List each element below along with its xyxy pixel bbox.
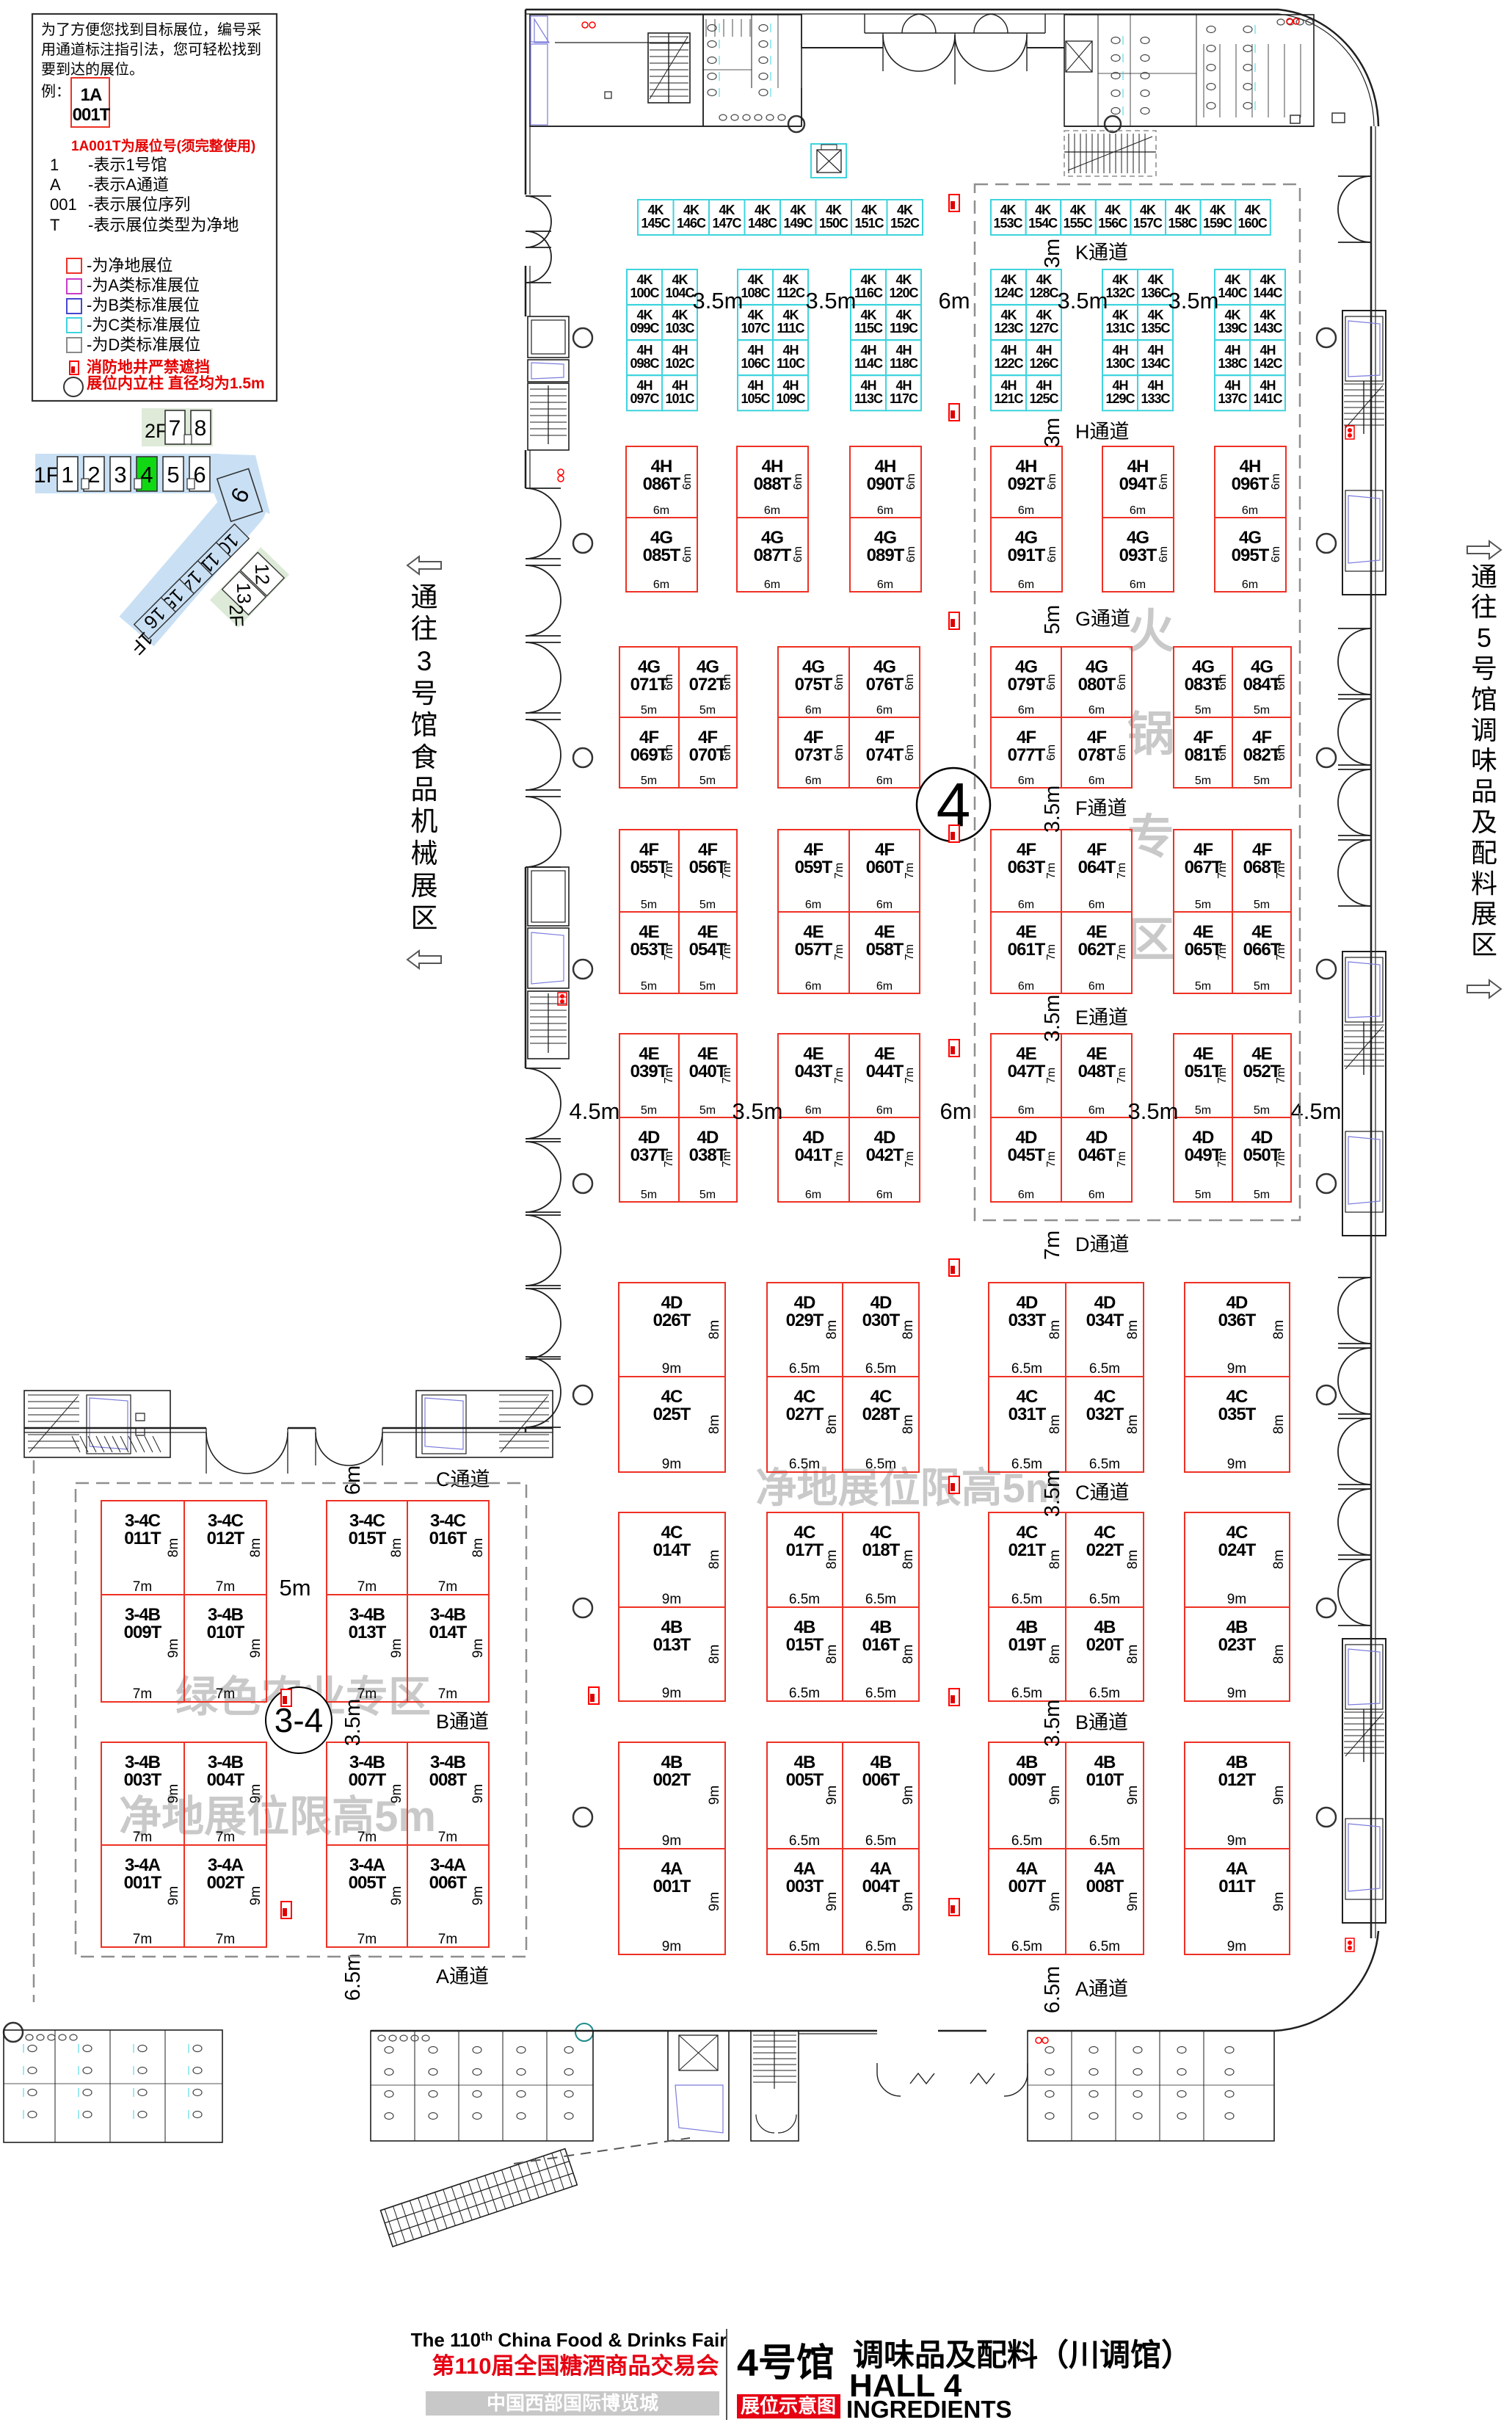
svg-text:2: 2 <box>87 462 100 488</box>
svg-text:食: 食 <box>411 742 438 772</box>
svg-text:4H: 4H <box>1112 343 1127 358</box>
svg-text:3-4B: 3-4B <box>208 1605 244 1625</box>
svg-text:134C: 134C <box>1141 356 1170 371</box>
svg-text:064T: 064T <box>1078 858 1116 877</box>
svg-text:7m: 7m <box>904 863 916 879</box>
svg-text:3-4C: 3-4C <box>208 1511 244 1531</box>
svg-text:6m: 6m <box>1116 674 1128 690</box>
svg-text:7m: 7m <box>216 1579 235 1595</box>
svg-text:3-4B: 3-4B <box>125 1605 161 1625</box>
svg-text:4F: 4F <box>1087 728 1106 747</box>
svg-text:6.5m: 6.5m <box>1011 1457 1042 1472</box>
svg-text:-为D类标准展位: -为D类标准展位 <box>87 336 200 354</box>
svg-text:消防地井严禁遮挡: 消防地井严禁遮挡 <box>87 358 210 376</box>
svg-text:4D: 4D <box>1193 1128 1214 1148</box>
svg-text:009T: 009T <box>1008 1770 1047 1790</box>
svg-text:9m: 9m <box>662 1686 681 1701</box>
svg-text:4E: 4E <box>1193 922 1213 942</box>
svg-text:8m: 8m <box>901 1320 916 1339</box>
svg-text:150C: 150C <box>819 216 848 231</box>
svg-text:往: 往 <box>411 614 438 644</box>
svg-text:9m: 9m <box>1227 1592 1246 1607</box>
svg-text:116C: 116C <box>854 286 883 300</box>
svg-text:3-4C: 3-4C <box>125 1511 161 1531</box>
svg-text:6.5m: 6.5m <box>1089 1833 1120 1849</box>
svg-text:4K: 4K <box>755 203 771 217</box>
svg-text:3-4B: 3-4B <box>349 1753 385 1772</box>
svg-text:8m: 8m <box>901 1415 916 1434</box>
svg-text:4E: 4E <box>1251 922 1272 942</box>
svg-text:8m: 8m <box>1125 1415 1141 1434</box>
svg-text:141C: 141C <box>1253 391 1282 406</box>
svg-text:109C: 109C <box>776 391 805 406</box>
svg-text:3-4B: 3-4B <box>430 1605 466 1625</box>
svg-text:014T: 014T <box>429 1623 468 1642</box>
svg-text:6.5m: 6.5m <box>1011 1592 1042 1607</box>
svg-text:4K: 4K <box>1174 203 1191 217</box>
svg-text:104C: 104C <box>665 286 694 300</box>
svg-text:4F: 4F <box>639 840 658 860</box>
svg-text:4K: 4K <box>1112 272 1128 287</box>
svg-text:6.5m: 6.5m <box>789 1361 820 1377</box>
svg-text:060T: 060T <box>866 858 904 877</box>
svg-text:4D: 4D <box>1251 1128 1273 1148</box>
svg-text:094T: 094T <box>1119 474 1157 494</box>
svg-text:111C: 111C <box>777 321 804 336</box>
svg-text:151C: 151C <box>854 216 884 231</box>
svg-text:3m: 3m <box>1041 418 1064 447</box>
svg-text:4K: 4K <box>1036 272 1052 287</box>
svg-text:4K: 4K <box>1224 308 1240 322</box>
svg-text:7m: 7m <box>1216 1151 1229 1167</box>
svg-text:101C: 101C <box>665 391 694 406</box>
svg-text:4C: 4C <box>1017 1523 1038 1543</box>
svg-text:6m: 6m <box>877 579 893 591</box>
svg-text:-表示展位序列: -表示展位序列 <box>88 195 190 214</box>
svg-text:4A: 4A <box>1226 1859 1248 1879</box>
svg-text:7m: 7m <box>1045 944 1058 960</box>
svg-text:011T: 011T <box>1218 1877 1256 1896</box>
svg-text:4G: 4G <box>873 657 895 677</box>
svg-text:6m: 6m <box>1018 504 1034 517</box>
svg-text:6m: 6m <box>1216 744 1229 761</box>
svg-text:6m: 6m <box>876 704 893 717</box>
svg-text:6.5m: 6.5m <box>865 1939 896 1954</box>
svg-text:4K: 4K <box>1000 272 1017 287</box>
svg-text:4F: 4F <box>698 728 717 747</box>
svg-text:016T: 016T <box>429 1529 468 1548</box>
svg-text:6m: 6m <box>764 579 780 591</box>
svg-text:5m: 5m <box>1195 775 1211 787</box>
svg-text:INGREDIENTS: INGREDIENTS <box>846 2396 1012 2423</box>
svg-text:6m: 6m <box>663 674 675 690</box>
svg-text:4K: 4K <box>1000 203 1016 217</box>
svg-text:8m: 8m <box>707 1415 722 1434</box>
svg-text:6m: 6m <box>1088 704 1105 717</box>
svg-text:4H: 4H <box>1240 457 1261 476</box>
svg-text:9m: 9m <box>248 1886 263 1905</box>
svg-text:136C: 136C <box>1141 286 1170 300</box>
svg-text:062T: 062T <box>1078 940 1116 960</box>
svg-text:4K: 4K <box>636 308 653 322</box>
svg-text:089T: 089T <box>867 546 905 565</box>
svg-text:128C: 128C <box>1029 286 1058 300</box>
svg-text:4C: 4C <box>871 1523 892 1543</box>
svg-text:3-4C: 3-4C <box>430 1511 466 1531</box>
svg-text:1A: 1A <box>81 85 102 105</box>
svg-text:2F: 2F <box>145 420 168 442</box>
svg-text:4H: 4H <box>672 378 687 393</box>
svg-text:3-4B: 3-4B <box>125 1753 161 1772</box>
svg-text:4C: 4C <box>661 1523 683 1543</box>
svg-text:-为B类标准展位: -为B类标准展位 <box>87 296 200 314</box>
svg-text:7m: 7m <box>216 1686 235 1702</box>
svg-text:5m: 5m <box>1254 1104 1270 1117</box>
svg-text:5m: 5m <box>1254 704 1270 717</box>
svg-text:144C: 144C <box>1253 286 1282 300</box>
svg-text:E通道: E通道 <box>1075 1007 1128 1029</box>
svg-text:1: 1 <box>50 156 59 174</box>
svg-text:6.5m: 6.5m <box>1011 1361 1042 1377</box>
svg-text:026T: 026T <box>653 1311 691 1330</box>
svg-text:4K: 4K <box>1140 203 1156 217</box>
svg-text:1F: 1F <box>34 463 59 488</box>
svg-text:020T: 020T <box>1086 1635 1124 1655</box>
svg-text:078T: 078T <box>1078 745 1116 765</box>
svg-text:6m: 6m <box>1018 775 1034 787</box>
svg-text:6m: 6m <box>876 775 893 787</box>
svg-text:080T: 080T <box>1078 675 1116 695</box>
svg-text:4B: 4B <box>1226 1617 1248 1637</box>
svg-text:088T: 088T <box>754 474 792 494</box>
svg-text:4F: 4F <box>1017 728 1036 747</box>
svg-text:7m: 7m <box>833 1151 846 1167</box>
svg-text:027T: 027T <box>786 1405 824 1424</box>
svg-text:4G: 4G <box>802 657 824 677</box>
svg-text:4D: 4D <box>1017 1293 1038 1313</box>
svg-text:002T: 002T <box>653 1770 691 1790</box>
svg-text:4K: 4K <box>747 272 763 287</box>
svg-text:4K: 4K <box>782 308 799 322</box>
svg-text:4B: 4B <box>794 1617 815 1637</box>
svg-text:7m: 7m <box>357 1932 377 1947</box>
svg-text:146C: 146C <box>677 216 706 231</box>
svg-text:8m: 8m <box>901 1550 916 1569</box>
svg-text:5m: 5m <box>279 1575 310 1601</box>
svg-text:6.5m: 6.5m <box>865 1457 896 1472</box>
svg-text:4H: 4H <box>636 378 652 393</box>
svg-text:058T: 058T <box>866 940 904 960</box>
svg-text:4K: 4K <box>672 308 688 322</box>
svg-text:4D: 4D <box>1226 1293 1248 1313</box>
svg-text:4K: 4K <box>747 308 763 322</box>
svg-text:4K: 4K <box>1035 203 1051 217</box>
svg-text:113C: 113C <box>854 391 883 406</box>
svg-text:6m: 6m <box>1018 704 1034 717</box>
svg-text:3: 3 <box>114 462 126 488</box>
svg-text:4E: 4E <box>1016 922 1036 942</box>
svg-text:5m: 5m <box>641 980 657 993</box>
svg-text:6m: 6m <box>1046 546 1058 562</box>
svg-text:4号馆: 4号馆 <box>737 2342 835 2385</box>
svg-text:130C: 130C <box>1105 356 1135 371</box>
svg-text:6m: 6m <box>1130 504 1146 517</box>
svg-text:8m: 8m <box>470 1538 486 1557</box>
svg-text:7m: 7m <box>1041 1231 1064 1260</box>
svg-text:017T: 017T <box>786 1540 824 1560</box>
svg-text:6.5m: 6.5m <box>1089 1592 1120 1607</box>
svg-text:057T: 057T <box>795 940 833 960</box>
svg-text:4E: 4E <box>697 922 718 942</box>
svg-text:125C: 125C <box>1029 391 1058 406</box>
svg-text:5m: 5m <box>1195 1104 1211 1117</box>
svg-text:-表示A通道: -表示A通道 <box>88 175 169 194</box>
svg-text:8m: 8m <box>1125 1320 1141 1339</box>
svg-text:076T: 076T <box>866 675 904 695</box>
svg-text:4K: 4K <box>897 203 913 217</box>
svg-text:4H: 4H <box>651 457 672 476</box>
svg-text:要到达的展位。: 要到达的展位。 <box>41 61 144 78</box>
svg-text:3.5m: 3.5m <box>1041 1470 1064 1517</box>
svg-text:034T: 034T <box>1086 1311 1124 1330</box>
svg-text:3-4B: 3-4B <box>208 1753 244 1772</box>
svg-text:8m: 8m <box>1047 1645 1063 1664</box>
svg-text:8m: 8m <box>248 1538 263 1557</box>
svg-text:4K: 4K <box>1147 308 1163 322</box>
svg-text:4K: 4K <box>895 272 912 287</box>
svg-text:4C: 4C <box>794 1523 815 1543</box>
svg-text:4K: 4K <box>636 272 653 287</box>
svg-text:7m: 7m <box>904 944 916 960</box>
svg-text:075T: 075T <box>795 675 833 695</box>
svg-text:029T: 029T <box>786 1311 824 1330</box>
svg-text:6m: 6m <box>1270 546 1282 562</box>
svg-text:9m: 9m <box>901 1786 916 1805</box>
svg-text:7m: 7m <box>721 863 733 879</box>
svg-text:3.5m: 3.5m <box>693 288 744 314</box>
svg-text:004T: 004T <box>862 1877 901 1896</box>
svg-text:041T: 041T <box>795 1145 833 1165</box>
svg-text:085T: 085T <box>643 546 681 565</box>
svg-text:6m: 6m <box>805 775 821 787</box>
svg-text:8m: 8m <box>1047 1415 1063 1434</box>
svg-text:048T: 048T <box>1078 1062 1116 1081</box>
svg-text:9m: 9m <box>470 1784 486 1803</box>
svg-text:4H: 4H <box>672 343 687 358</box>
svg-text:4B: 4B <box>871 1617 892 1637</box>
svg-text:6m: 6m <box>764 504 780 517</box>
svg-text:3.5m: 3.5m <box>1058 288 1108 314</box>
svg-text:4G: 4G <box>697 657 719 677</box>
svg-text:5m: 5m <box>1195 1189 1211 1201</box>
svg-text:003T: 003T <box>124 1770 162 1790</box>
svg-text:091T: 091T <box>1008 546 1046 565</box>
svg-text:4H: 4H <box>895 343 911 358</box>
svg-text:9m: 9m <box>389 1784 404 1803</box>
svg-text:4K: 4K <box>1112 308 1128 322</box>
svg-text:4E: 4E <box>1251 1044 1272 1064</box>
svg-text:4F: 4F <box>875 728 894 747</box>
svg-text:4D: 4D <box>871 1293 892 1313</box>
svg-text:024T: 024T <box>1218 1540 1257 1560</box>
svg-text:7m: 7m <box>1275 1151 1287 1167</box>
svg-text:4K: 4K <box>1105 203 1121 217</box>
svg-text:5m: 5m <box>699 775 716 787</box>
svg-text:095T: 095T <box>1232 546 1270 565</box>
svg-text:6m: 6m <box>1088 1189 1105 1201</box>
svg-text:073T: 073T <box>795 745 833 765</box>
svg-text:7m: 7m <box>1116 1068 1128 1084</box>
svg-text:4G: 4G <box>1127 528 1149 548</box>
svg-text:061T: 061T <box>1008 940 1046 960</box>
svg-text:5m: 5m <box>699 980 716 993</box>
svg-text:5m: 5m <box>1254 980 1270 993</box>
svg-text:7m: 7m <box>721 1068 733 1084</box>
svg-text:8m: 8m <box>1271 1645 1287 1664</box>
svg-text:4F: 4F <box>804 840 823 860</box>
svg-text:9m: 9m <box>1227 1939 1246 1954</box>
svg-text:4: 4 <box>140 462 153 488</box>
svg-text:033T: 033T <box>1008 1311 1047 1330</box>
svg-text:4B: 4B <box>661 1753 683 1772</box>
svg-text:4K: 4K <box>861 203 877 217</box>
svg-text:9m: 9m <box>1227 1833 1246 1849</box>
svg-text:122C: 122C <box>994 356 1023 371</box>
svg-text:044T: 044T <box>866 1062 904 1081</box>
svg-text:7m: 7m <box>1275 1068 1287 1084</box>
svg-text:001T: 001T <box>653 1877 691 1896</box>
svg-text:8m: 8m <box>707 1550 722 1569</box>
svg-text:例：: 例： <box>41 83 70 100</box>
svg-text:112C: 112C <box>777 286 805 300</box>
svg-text:5m: 5m <box>699 1189 716 1201</box>
svg-text:9m: 9m <box>1227 1686 1246 1701</box>
svg-text:022T: 022T <box>1086 1540 1124 1560</box>
svg-text:148C: 148C <box>748 216 777 231</box>
svg-text:097C: 097C <box>630 391 659 406</box>
svg-text:5m: 5m <box>641 704 657 717</box>
svg-text:154C: 154C <box>1028 216 1058 231</box>
svg-text:9m: 9m <box>166 1639 181 1658</box>
svg-text:6m: 6m <box>653 579 669 591</box>
svg-text:6.5m: 6.5m <box>341 1954 365 2001</box>
svg-text:156C: 156C <box>1098 216 1127 231</box>
svg-text:6m: 6m <box>876 1104 893 1117</box>
svg-text:4G: 4G <box>1192 657 1214 677</box>
svg-text:4E: 4E <box>1086 922 1107 942</box>
svg-text:6m: 6m <box>721 674 733 690</box>
svg-text:157C: 157C <box>1133 216 1163 231</box>
svg-text:配: 配 <box>1471 838 1497 868</box>
svg-text:馆: 馆 <box>1471 684 1497 714</box>
svg-text:7m: 7m <box>663 1151 675 1167</box>
svg-text:1: 1 <box>61 462 73 488</box>
svg-text:4K: 4K <box>782 272 799 287</box>
svg-text:4K: 4K <box>1260 272 1276 287</box>
svg-text:6.5m: 6.5m <box>789 1457 820 1472</box>
svg-text:013T: 013T <box>653 1635 691 1655</box>
svg-text:6m: 6m <box>876 899 893 911</box>
svg-text:3.5m: 3.5m <box>1041 995 1064 1042</box>
svg-text:4D: 4D <box>803 1128 824 1148</box>
svg-text:137C: 137C <box>1218 391 1247 406</box>
svg-text:4H: 4H <box>1260 343 1275 358</box>
svg-text:7m: 7m <box>438 1830 457 1845</box>
svg-text:9m: 9m <box>662 1833 681 1849</box>
svg-text:9m: 9m <box>901 1892 916 1911</box>
svg-text:115C: 115C <box>854 321 883 336</box>
svg-text:4H: 4H <box>1260 378 1275 393</box>
svg-text:6m: 6m <box>681 474 694 490</box>
svg-text:2F: 2F <box>225 604 248 627</box>
svg-text:149C: 149C <box>783 216 813 231</box>
svg-text:046T: 046T <box>1078 1145 1116 1165</box>
svg-text:6m: 6m <box>805 980 821 993</box>
svg-text:6.5m: 6.5m <box>789 1686 820 1701</box>
svg-text:9m: 9m <box>1227 1361 1246 1377</box>
svg-text:8: 8 <box>195 416 207 441</box>
svg-text:4A: 4A <box>1094 1859 1116 1879</box>
svg-text:140C: 140C <box>1218 286 1247 300</box>
svg-text:7m: 7m <box>357 1579 377 1595</box>
svg-text:3-4A: 3-4A <box>430 1855 466 1875</box>
svg-text:6m: 6m <box>939 1098 971 1124</box>
svg-text:121C: 121C <box>994 391 1023 406</box>
svg-text:8m: 8m <box>166 1538 181 1557</box>
svg-text:4B: 4B <box>1226 1753 1248 1772</box>
svg-text:5: 5 <box>1477 623 1491 653</box>
svg-text:4E: 4E <box>803 922 824 942</box>
svg-text:6.5m: 6.5m <box>1011 1686 1042 1701</box>
svg-text:4B: 4B <box>871 1753 892 1772</box>
svg-text:8m: 8m <box>707 1645 722 1664</box>
svg-text:调: 调 <box>1471 715 1497 745</box>
svg-text:6m: 6m <box>1270 474 1282 490</box>
svg-text:4H: 4H <box>1036 343 1051 358</box>
svg-text:D通道: D通道 <box>1075 1233 1130 1255</box>
svg-text:4H: 4H <box>1036 378 1051 393</box>
svg-text:7m: 7m <box>216 1830 235 1845</box>
svg-text:007T: 007T <box>1008 1877 1047 1896</box>
svg-text:4G: 4G <box>1015 657 1037 677</box>
svg-text:5m: 5m <box>1254 899 1270 911</box>
svg-text:B通道: B通道 <box>1075 1711 1128 1733</box>
svg-text:110C: 110C <box>777 356 805 371</box>
svg-text:009T: 009T <box>124 1623 162 1642</box>
svg-text:13: 13 <box>233 582 255 604</box>
svg-text:3-4A: 3-4A <box>125 1855 161 1875</box>
svg-text:4G: 4G <box>1251 657 1273 677</box>
svg-text:045T: 045T <box>1008 1145 1046 1165</box>
svg-text:4H: 4H <box>1147 378 1163 393</box>
svg-text:往: 往 <box>1471 592 1497 622</box>
svg-text:5m: 5m <box>1195 704 1211 717</box>
svg-text:5m: 5m <box>699 899 716 911</box>
svg-text:4D: 4D <box>697 1128 719 1148</box>
svg-text:6m: 6m <box>1088 775 1105 787</box>
svg-text:4G: 4G <box>1239 528 1261 548</box>
svg-text:030T: 030T <box>862 1311 901 1330</box>
svg-text:160C: 160C <box>1238 216 1268 231</box>
svg-text:6m: 6m <box>1088 899 1105 911</box>
svg-text:展: 展 <box>1471 899 1497 929</box>
svg-text:031T: 031T <box>1008 1405 1047 1424</box>
svg-text:4.5m: 4.5m <box>1291 1098 1342 1124</box>
svg-text:4H: 4H <box>1016 457 1037 476</box>
svg-text:9m: 9m <box>1271 1892 1287 1911</box>
svg-text:4.5m: 4.5m <box>570 1098 620 1124</box>
svg-text:6m: 6m <box>1242 504 1258 517</box>
